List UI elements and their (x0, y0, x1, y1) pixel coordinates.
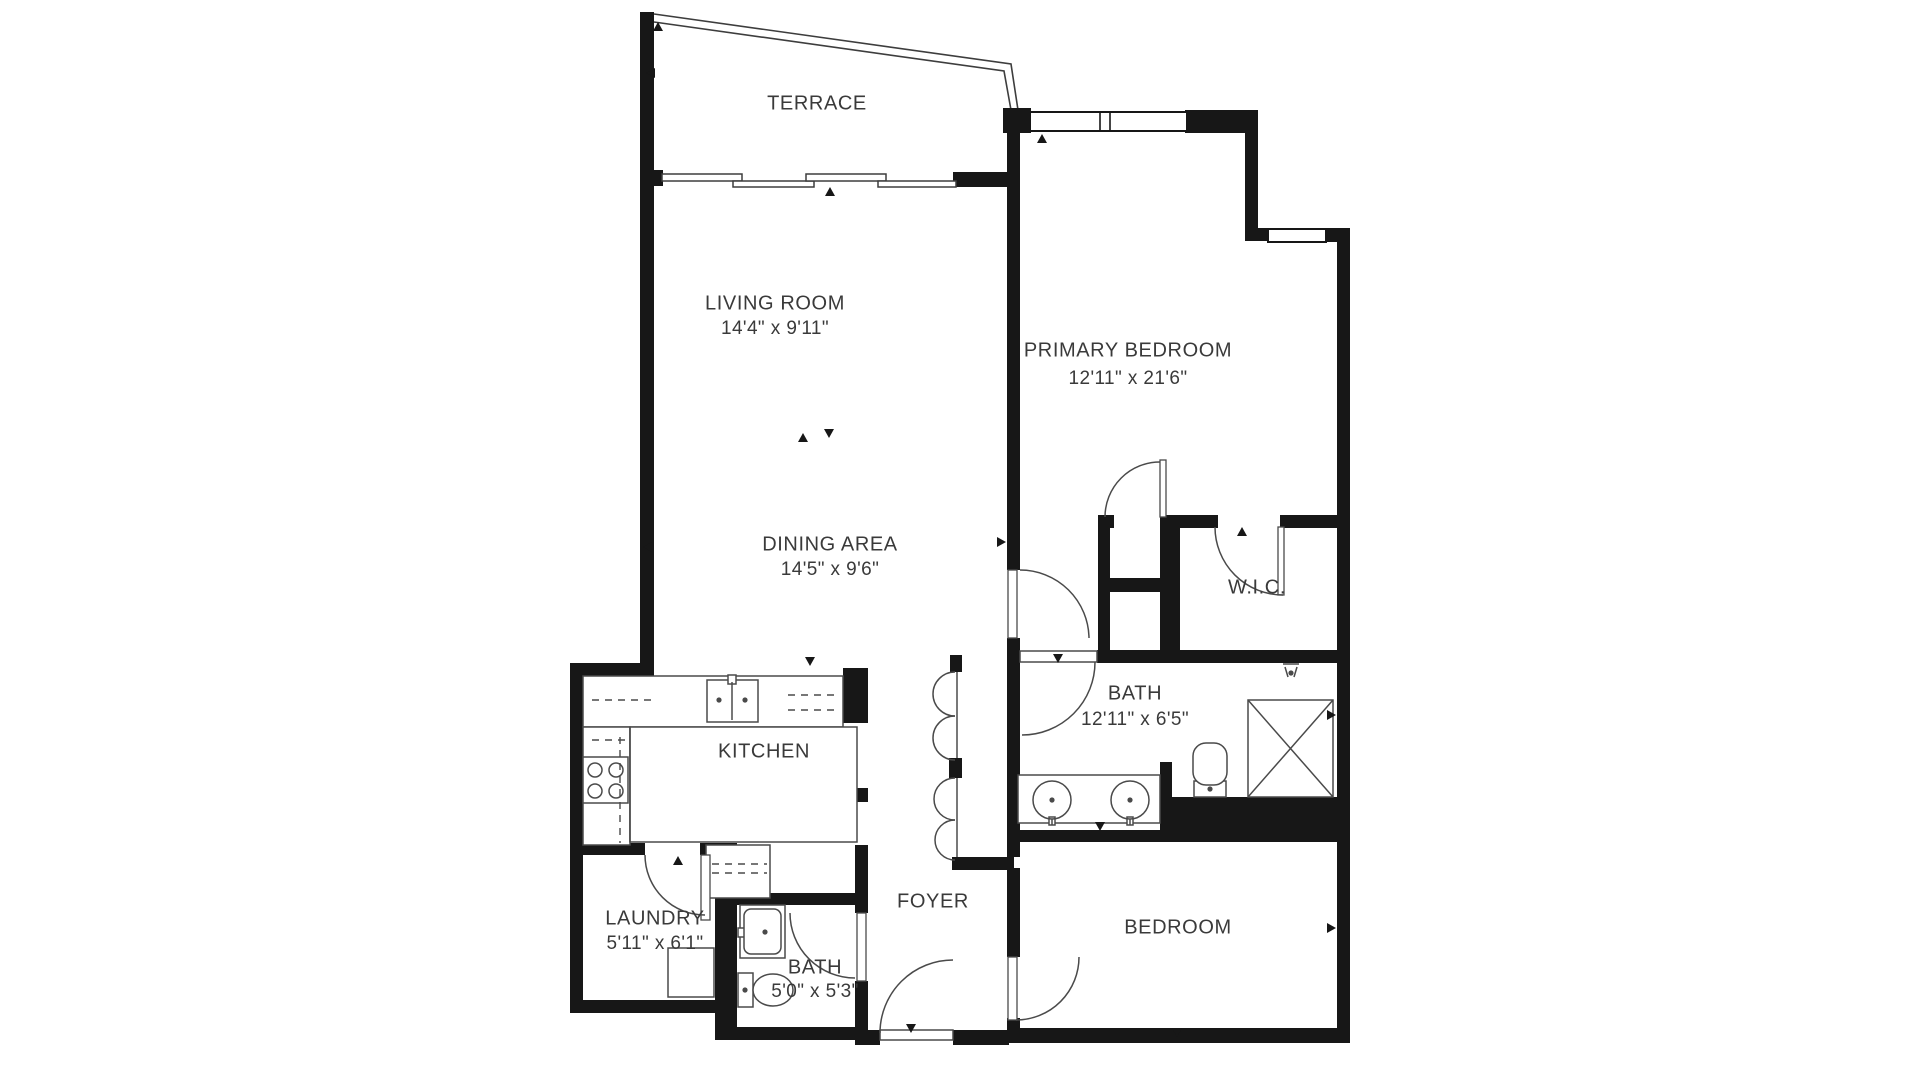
wall (1245, 123, 1258, 233)
room-label-foyer: FOYER (897, 890, 969, 912)
room-label-bath-small: BATH (788, 956, 842, 978)
wall (1337, 240, 1350, 1043)
wall (952, 857, 1014, 870)
door-leaf (1160, 460, 1166, 517)
wall (855, 845, 868, 913)
fixture-dot (1049, 797, 1054, 802)
fixture-dot (1288, 670, 1293, 675)
sliding-door-panel (878, 181, 956, 187)
kitchen-peninsula (706, 845, 770, 898)
wall (1185, 110, 1258, 133)
fixture-dot (716, 697, 721, 702)
room-label-primary-bedroom: PRIMARY BEDROOM (1024, 339, 1232, 361)
wall (953, 1030, 1009, 1045)
wall (953, 172, 1007, 187)
room-label-laundry: LAUNDRY (605, 907, 704, 929)
door-leaf (1008, 570, 1017, 638)
wall (640, 12, 654, 676)
room-dims-living-room: 14'4" x 9'11" (721, 318, 829, 339)
room-label-bedroom: BEDROOM (1124, 916, 1232, 938)
wall (1007, 112, 1020, 570)
wall (1324, 228, 1350, 242)
entry-threshold (880, 1030, 953, 1040)
wall (715, 1027, 868, 1040)
room-label-bath-main: BATH (1108, 682, 1162, 704)
wall (949, 758, 962, 778)
room-label-dining-area: DINING AREA (762, 533, 898, 555)
room-dims-laundry: 5'11" x 6'1" (606, 933, 703, 954)
plan-background (0, 0, 1920, 1080)
room-dims-bath-small: 5'0" x 5'3" (771, 981, 858, 1002)
wall (1160, 797, 1347, 830)
fixture-dot (1127, 797, 1132, 802)
wall (1007, 638, 1020, 857)
window (1030, 112, 1187, 131)
wall (1018, 830, 1350, 842)
room-dims-dining-area: 14'5" x 9'6" (781, 559, 879, 580)
fixture-dot (742, 987, 747, 992)
sliding-door-panel (662, 174, 742, 181)
wall (570, 1000, 728, 1013)
door-leaf (1008, 957, 1017, 1020)
washer (668, 948, 714, 997)
door-leaf (857, 913, 866, 981)
sliding-door-panel (733, 181, 814, 187)
wall (950, 655, 962, 672)
wall (1097, 650, 1347, 663)
wall (843, 668, 868, 723)
room-label-wic: W.I.C. (1228, 576, 1286, 598)
floor-plan: TERRACELIVING ROOM14'4" x 9'11"PRIMARY B… (0, 0, 1920, 1080)
wall (855, 1030, 880, 1045)
fixture-dot (762, 929, 767, 934)
vanity-counter (1018, 775, 1160, 823)
fixture-dot (1207, 786, 1212, 791)
room-dims-bath-main: 12'11" x 6'5" (1081, 709, 1189, 730)
wall (1007, 868, 1020, 957)
room-label-kitchen: KITCHEN (718, 740, 810, 762)
window (1268, 229, 1326, 242)
room-label-terrace: TERRACE (767, 92, 867, 114)
fixture-dot (742, 697, 747, 702)
wall (1098, 578, 1173, 592)
room-label-living-room: LIVING ROOM (705, 292, 845, 314)
wall (1280, 515, 1347, 528)
floor-plan-page: TERRACELIVING ROOM14'4" x 9'11"PRIMARY B… (0, 0, 1920, 1080)
toilet-bowl (1193, 743, 1227, 785)
wall (570, 663, 583, 1013)
room-dims-primary-bedroom: 12'11" x 21'6" (1069, 368, 1188, 389)
sliding-door-panel (806, 174, 886, 181)
